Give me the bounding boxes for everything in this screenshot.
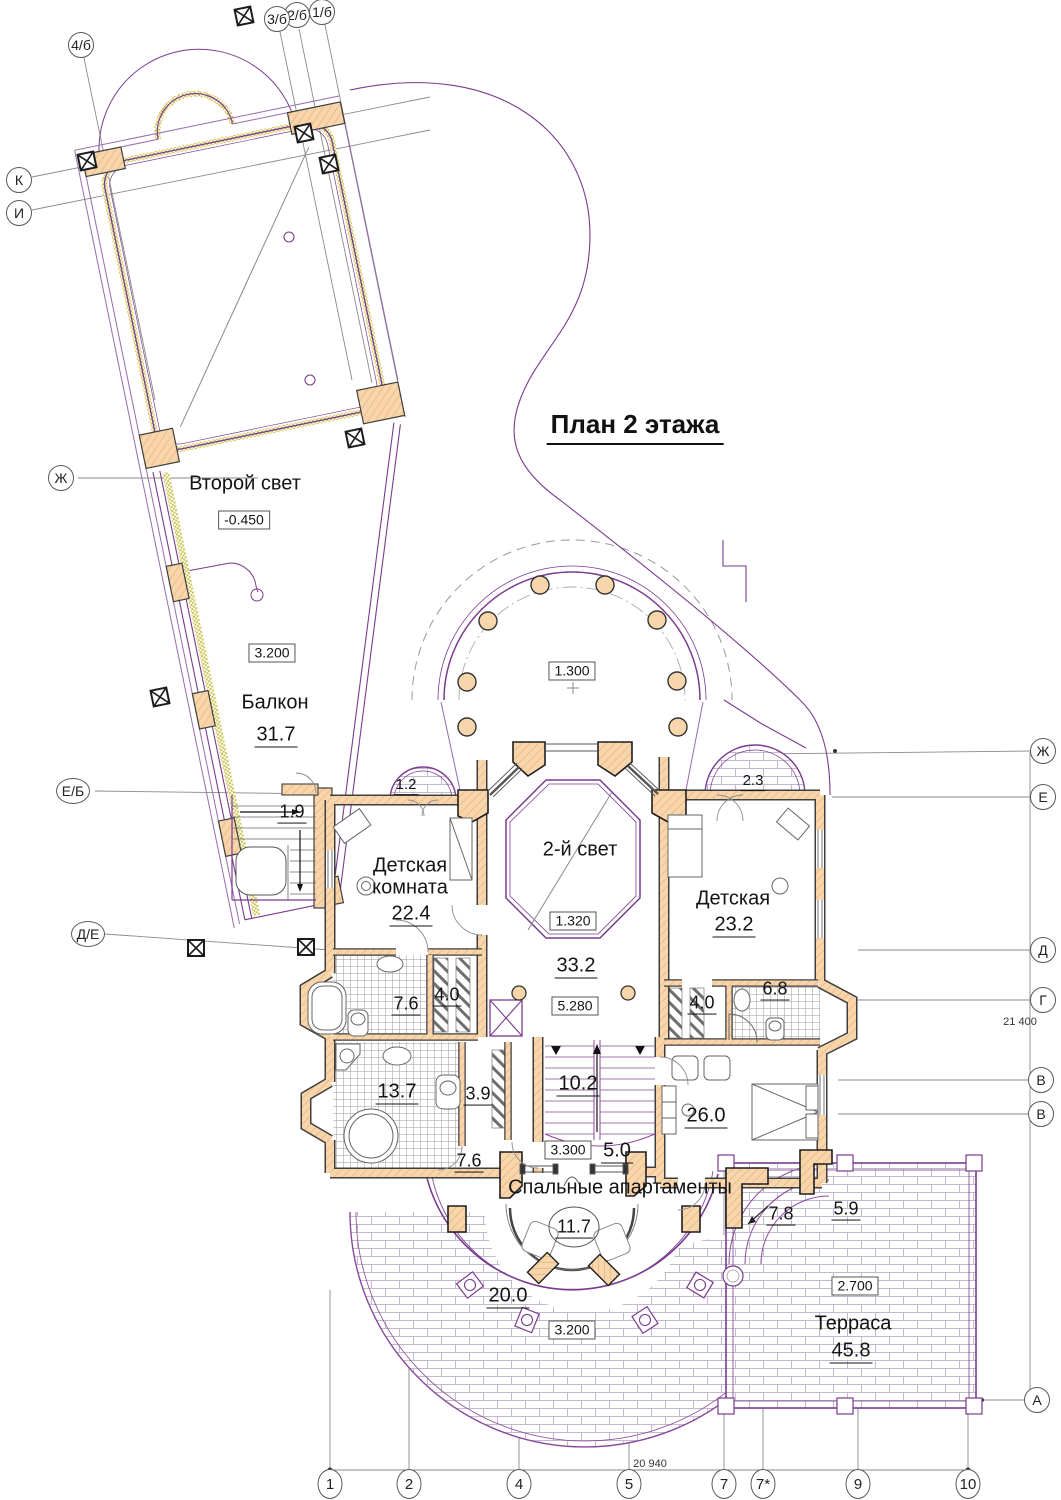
axis-right-g: Г — [1030, 987, 1056, 1013]
area-hall: 7.6 — [454, 1152, 483, 1171]
area-steps-left: 7.8 — [766, 1205, 795, 1224]
axis-bottom-2: 2 — [397, 1469, 422, 1499]
area-balcony-left: 1.2 — [394, 777, 419, 793]
axis-right-zh: Ж — [1030, 738, 1056, 764]
room-wing-balcony: Балкон — [241, 693, 308, 714]
area-closet-master: 3.9 — [463, 1085, 492, 1104]
suite-label: Спальные апартаменты — [508, 1178, 732, 1199]
level-upper-hall: -0.450 — [218, 511, 270, 530]
axis-bottom-9: 9 — [846, 1469, 871, 1499]
axis-left-i: И — [6, 200, 32, 226]
area-round-balcony: 11.7 — [555, 1218, 593, 1237]
area-nursery-right: 23.2 — [713, 915, 756, 936]
axis-right-a: А — [1024, 1387, 1050, 1413]
area-master-bedroom: 26.0 — [685, 1106, 728, 1127]
level-lower-balcony: 3.200 — [548, 1321, 595, 1340]
axis-bottom-4: 4 — [507, 1469, 532, 1499]
room-nursery-left-2: комната — [372, 878, 448, 899]
plan-linework — [0, 0, 1061, 1500]
level-second-light-floor: 1.320 — [549, 912, 596, 931]
room-second-light: 2-й свет — [543, 840, 618, 861]
area-second-light: 33.2 — [555, 956, 598, 977]
area-closet-left: 4.0 — [432, 986, 461, 1005]
plan-title: План 2 этажа — [547, 409, 724, 445]
area-nursery-left: 22.4 — [390, 904, 433, 925]
dimension-right: 21 400 — [1003, 1016, 1037, 1028]
axis-right-e: Е — [1030, 784, 1056, 810]
axis-left-de: Д/Е — [71, 921, 105, 947]
area-stair-landing: 1.9 — [277, 803, 306, 822]
area-bathroom-right: 6.8 — [760, 980, 789, 999]
axis-left-eb: Е/Б — [56, 778, 90, 804]
axis-right-v1: В — [1028, 1067, 1054, 1093]
room-terrace: Терраса — [815, 1314, 892, 1335]
axis-bottom-5: 5 — [617, 1469, 642, 1499]
axis-left-k: К — [6, 167, 32, 193]
axis-top-3b: 3/б — [264, 6, 290, 32]
axis-top-1b: 1/б — [309, 0, 335, 25]
level-colonnade: 1.300 — [548, 662, 595, 681]
room-nursery-right: Детская — [696, 889, 770, 910]
area-bathroom-left: 7.6 — [391, 995, 420, 1014]
axis-right-v2: В — [1028, 1101, 1054, 1127]
area-steps-right: 5.9 — [831, 1200, 860, 1219]
level-wing-balcony: 3.200 — [248, 644, 295, 663]
axis-top-4b: 4/б — [68, 32, 94, 58]
level-second-light-h: 5.280 — [551, 997, 598, 1016]
area-closet-right: 4.0 — [687, 994, 716, 1013]
area-bathroom-master: 13.7 — [376, 1082, 419, 1103]
area-balcony-right: 2.3 — [741, 773, 766, 789]
room-nursery-left: Детская — [373, 856, 447, 877]
axis-bottom-1: 1 — [318, 1469, 343, 1499]
level-terrace: 2.700 — [831, 1277, 878, 1296]
area-lower-terrace: 20.0 — [487, 1286, 530, 1307]
axis-bottom-7s: 7* — [751, 1469, 776, 1499]
roof-outline-curves — [187, 83, 830, 795]
axis-left-zh: Ж — [48, 465, 74, 491]
axis-bottom-7: 7 — [712, 1469, 737, 1499]
area-terrace: 45.8 — [830, 1341, 873, 1362]
level-stairs: 3.300 — [544, 1141, 591, 1160]
room-upper-hall: Второй свет — [189, 474, 301, 495]
area-wing-balcony: 31.7 — [255, 725, 298, 746]
area-staircase: 10.2 — [557, 1074, 600, 1095]
floor-plan-page: План 2 этажа Второй свет -0.450 3.200 Ба… — [0, 0, 1061, 1500]
dimension-bottom: 20 940 — [633, 1458, 667, 1470]
axis-bottom-10: 10 — [956, 1469, 981, 1499]
area-landing: 5.0 — [601, 1141, 633, 1162]
axis-right-d: Д — [1030, 937, 1056, 963]
